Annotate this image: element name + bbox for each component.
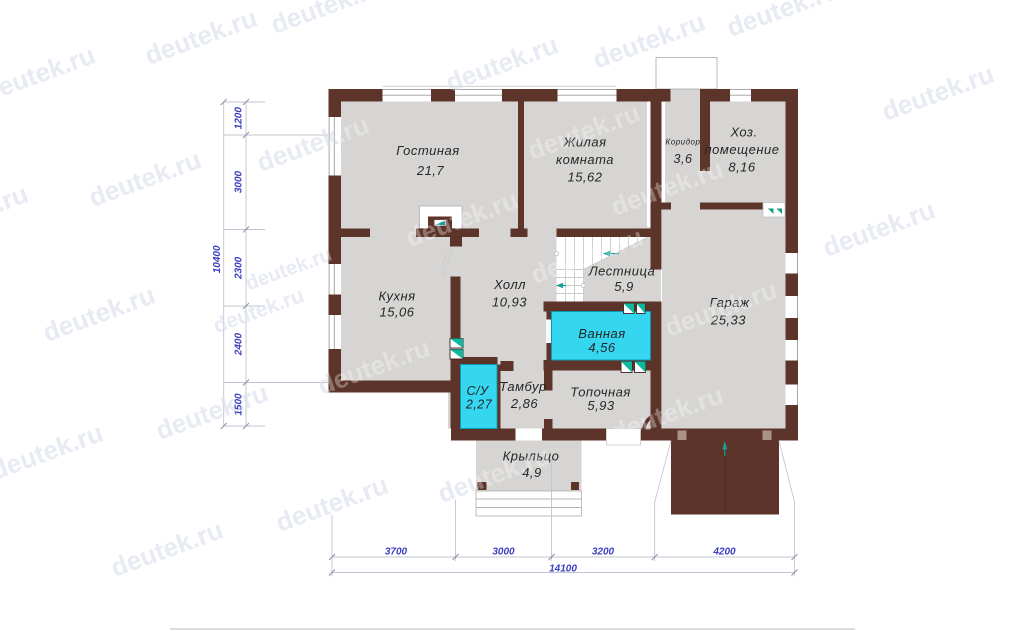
svg-text:Гостиная: Гостиная — [396, 143, 459, 158]
svg-text:3700: 3700 — [385, 547, 408, 558]
svg-text:Кухня: Кухня — [378, 289, 415, 304]
svg-text:4200: 4200 — [712, 547, 736, 558]
svg-text:3000: 3000 — [492, 547, 515, 558]
svg-text:Холл: Холл — [493, 277, 526, 292]
svg-text:С/У: С/У — [467, 384, 491, 398]
svg-text:1200: 1200 — [234, 107, 245, 130]
svg-text:2,86: 2,86 — [510, 396, 539, 411]
svg-text:Тамбур: Тамбур — [499, 379, 547, 394]
svg-text:21,7: 21,7 — [416, 163, 445, 178]
svg-text:14100: 14100 — [549, 564, 577, 575]
svg-text:4,56: 4,56 — [588, 340, 616, 355]
svg-text:2,27: 2,27 — [465, 398, 493, 412]
svg-text:10400: 10400 — [212, 245, 223, 273]
svg-text:8,16: 8,16 — [728, 160, 756, 175]
svg-text:15,62: 15,62 — [567, 170, 602, 185]
svg-text:10,93: 10,93 — [492, 295, 527, 310]
svg-text:5,9: 5,9 — [614, 279, 634, 294]
svg-text:Хоз.: Хоз. — [729, 125, 757, 140]
svg-text:Ванная: Ванная — [578, 326, 625, 341]
svg-text:2400: 2400 — [234, 333, 245, 357]
svg-text:3000: 3000 — [234, 170, 245, 193]
svg-text:5,93: 5,93 — [587, 398, 615, 413]
svg-text:15,06: 15,06 — [379, 305, 414, 320]
svg-text:3200: 3200 — [592, 547, 615, 558]
svg-text:Коридор: Коридор — [666, 138, 701, 147]
